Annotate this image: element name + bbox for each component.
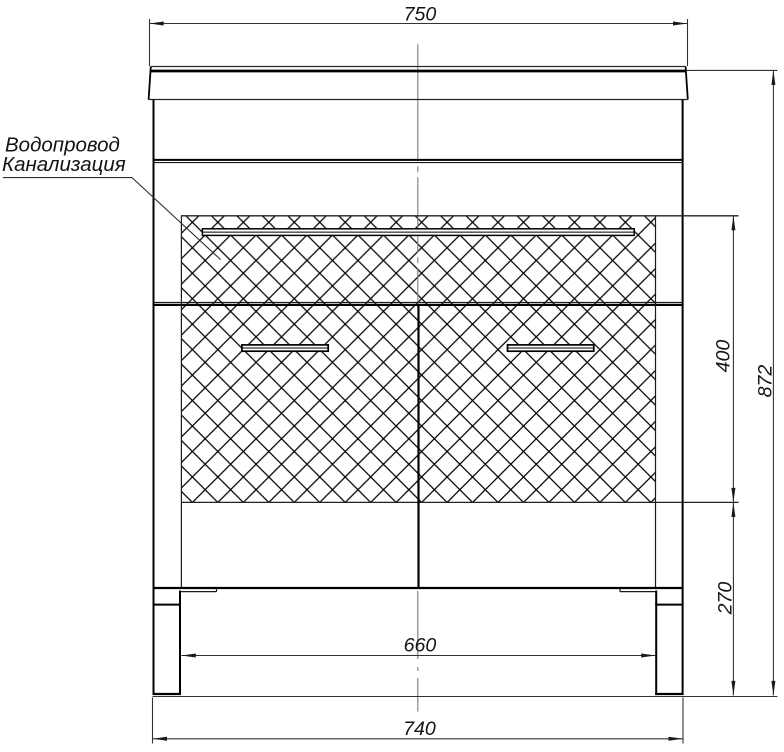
svg-text:660: 660 bbox=[404, 635, 437, 657]
svg-text:750: 750 bbox=[404, 4, 437, 26]
svg-text:400: 400 bbox=[713, 340, 735, 373]
svg-text:740: 740 bbox=[403, 718, 436, 740]
svg-text:270: 270 bbox=[715, 582, 737, 616]
svg-text:Канализация: Канализация bbox=[2, 153, 126, 176]
svg-text:872: 872 bbox=[755, 365, 777, 398]
